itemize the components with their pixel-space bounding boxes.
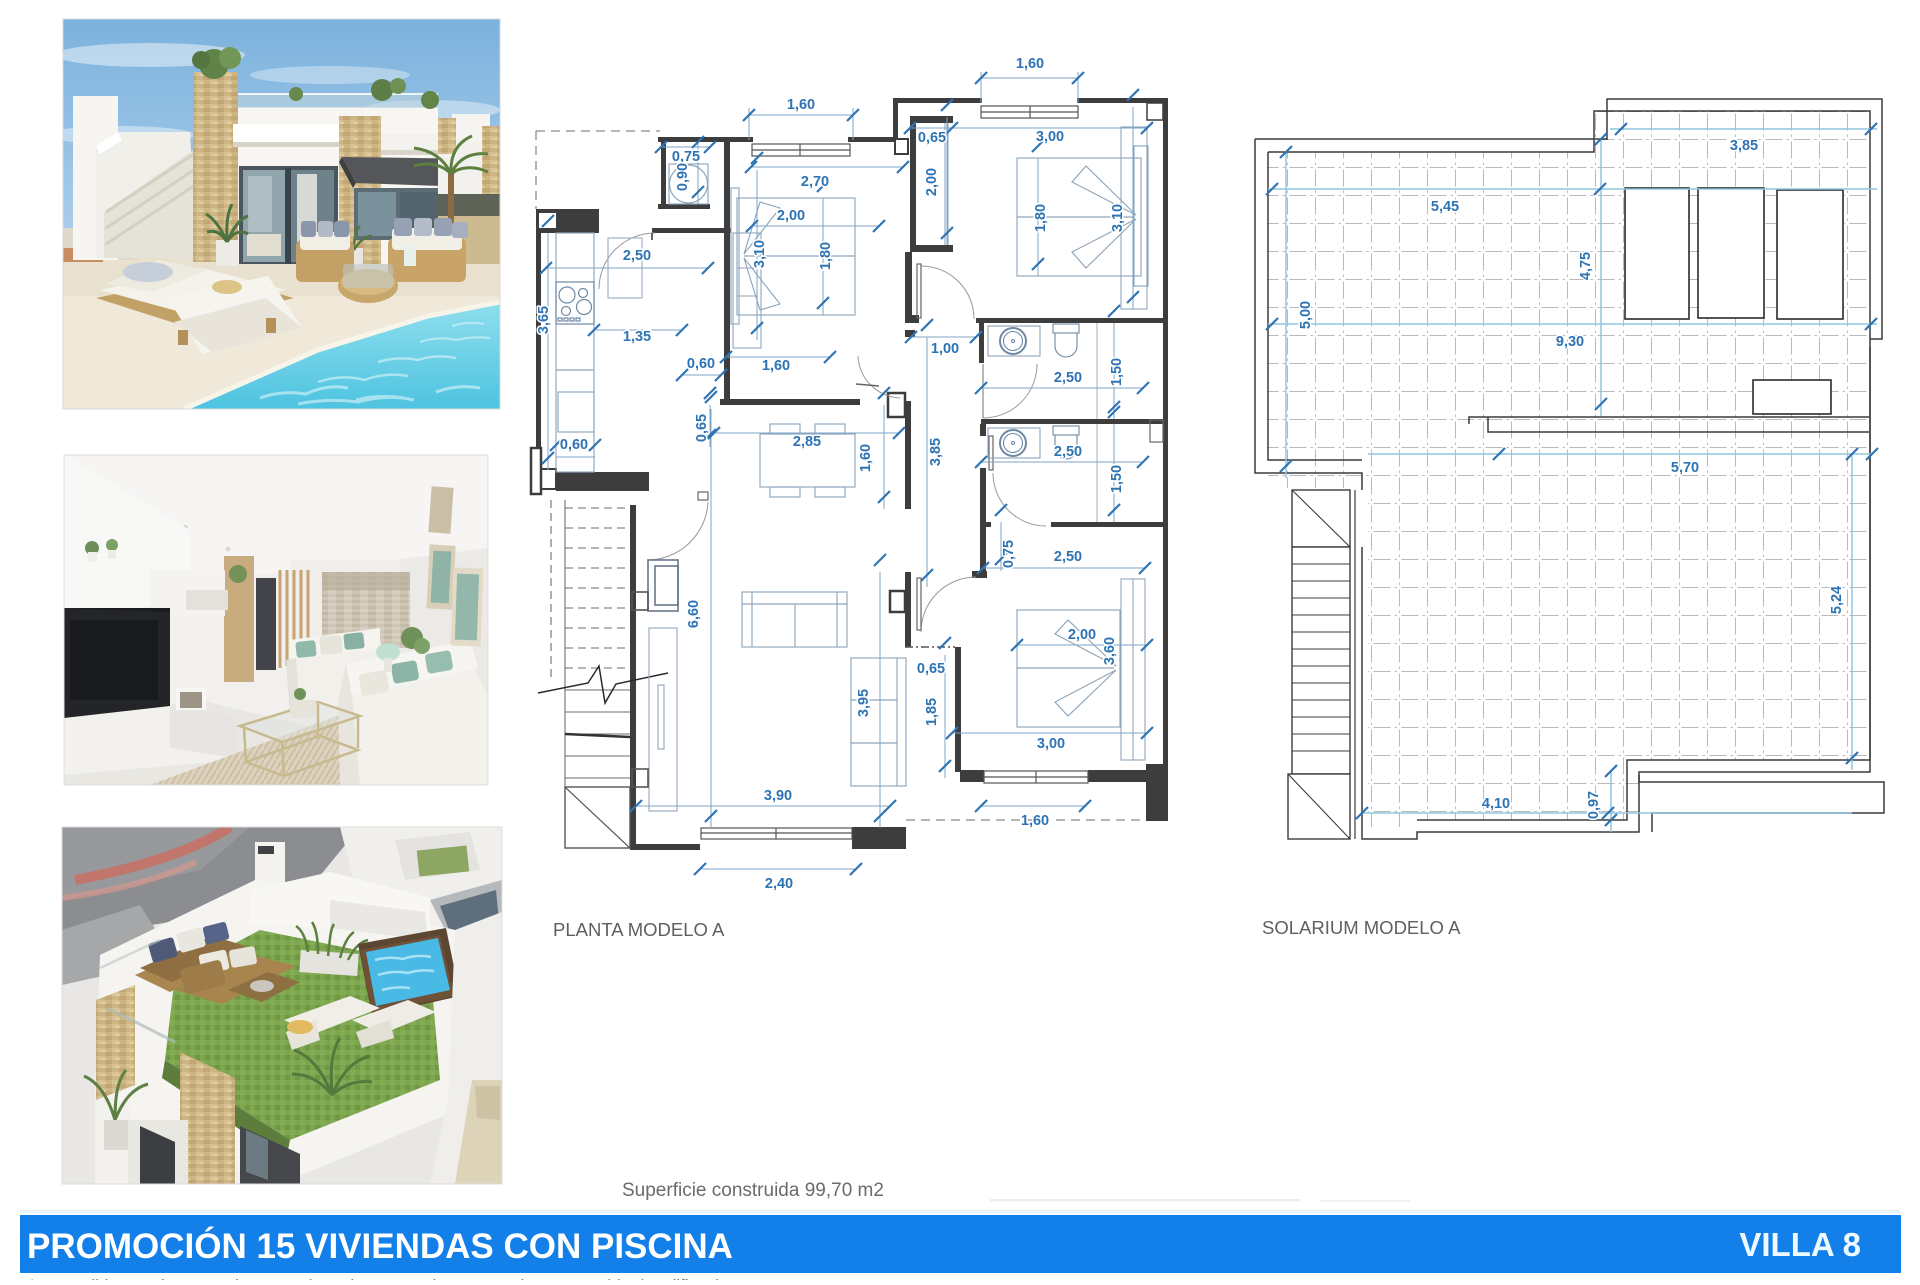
svg-text:SOLARIUM MODELO A: SOLARIUM MODELO A	[1262, 917, 1461, 938]
svg-text:0,90: 0,90	[675, 163, 691, 191]
svg-text:0,65: 0,65	[694, 414, 710, 442]
svg-text:1,60: 1,60	[1016, 56, 1044, 72]
svg-text:2,00: 2,00	[924, 168, 940, 196]
svg-text:3,65: 3,65	[536, 306, 552, 334]
svg-text:5,70: 5,70	[1671, 460, 1699, 476]
svg-text:0,60: 0,60	[560, 437, 588, 453]
svg-text:4,10: 4,10	[1482, 796, 1510, 812]
svg-text:0,97: 0,97	[1586, 791, 1602, 819]
svg-text:3,60: 3,60	[1102, 637, 1118, 665]
svg-text:0,65: 0,65	[917, 661, 945, 677]
svg-text:3,10: 3,10	[1110, 204, 1126, 232]
svg-text:2,85: 2,85	[793, 434, 821, 450]
svg-text:3,00: 3,00	[1036, 129, 1064, 145]
svg-text:2,00: 2,00	[1068, 627, 1096, 643]
svg-text:1,00: 1,00	[931, 341, 959, 357]
svg-text:2,50: 2,50	[623, 248, 651, 264]
svg-text:1,35: 1,35	[623, 329, 651, 345]
svg-text:1,80: 1,80	[818, 242, 834, 270]
svg-text:2,70: 2,70	[801, 174, 829, 190]
svg-text:1,60: 1,60	[858, 444, 874, 472]
svg-text:3,10: 3,10	[752, 240, 768, 268]
svg-text:2,50: 2,50	[1054, 549, 1082, 565]
svg-text:VILLA 8: VILLA 8	[1739, 1226, 1861, 1263]
svg-text:1,60: 1,60	[1021, 813, 1049, 829]
svg-text:3,85: 3,85	[928, 438, 944, 466]
svg-text:3,90: 3,90	[764, 788, 792, 804]
svg-text:6,60: 6,60	[686, 600, 702, 628]
svg-text:3,00: 3,00	[1037, 736, 1065, 752]
svg-text:3,95: 3,95	[856, 689, 872, 717]
svg-text:0,60: 0,60	[687, 356, 715, 372]
svg-text:1,60: 1,60	[787, 97, 815, 113]
svg-text:0,75: 0,75	[1001, 540, 1017, 568]
svg-text:2,00: 2,00	[777, 208, 805, 224]
svg-text:1,80: 1,80	[1033, 204, 1049, 232]
svg-text:PROMOCIÓN 15 VIVIENDAS CON PIS: PROMOCIÓN 15 VIVIENDAS CON PISCINA	[27, 1226, 733, 1266]
svg-text:4,75: 4,75	[1578, 252, 1594, 280]
svg-text:1,85: 1,85	[924, 698, 940, 726]
svg-text:5,24: 5,24	[1829, 586, 1845, 614]
svg-text:5,00: 5,00	[1298, 301, 1314, 329]
svg-text:PLANTA MODELO A: PLANTA MODELO A	[553, 919, 725, 940]
svg-text:Superficie construida 99,70 m2: Superficie construida 99,70 m2	[622, 1180, 884, 1201]
svg-text:2,50: 2,50	[1054, 370, 1082, 386]
svg-text:Las medidas aquí expresadas so: Las medidas aquí expresadas son orientat…	[30, 1276, 756, 1280]
svg-text:3,85: 3,85	[1730, 138, 1758, 154]
svg-text:1,50: 1,50	[1109, 358, 1125, 386]
svg-text:1,50: 1,50	[1109, 465, 1125, 493]
svg-text:1,60: 1,60	[762, 358, 790, 374]
svg-text:0,75: 0,75	[672, 149, 700, 165]
svg-text:9,30: 9,30	[1556, 334, 1584, 350]
svg-text:0,65: 0,65	[918, 130, 946, 146]
svg-text:5,45: 5,45	[1431, 199, 1459, 215]
svg-text:2,40: 2,40	[765, 876, 793, 892]
svg-text:2,50: 2,50	[1054, 444, 1082, 460]
